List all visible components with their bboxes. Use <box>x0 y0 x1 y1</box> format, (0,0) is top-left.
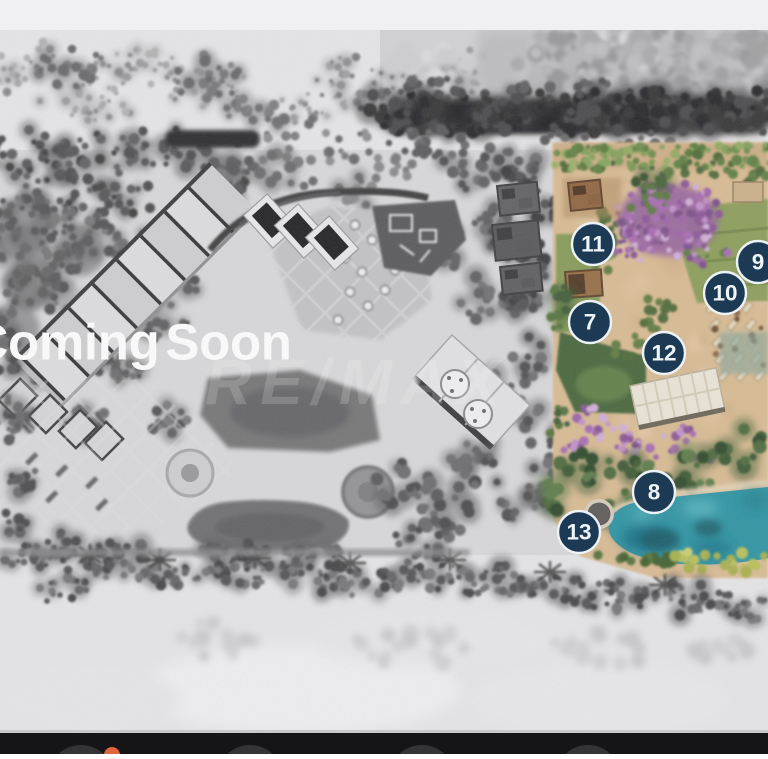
svg-text:9: 9 <box>752 250 765 275</box>
svg-text:13: 13 <box>566 520 591 545</box>
svg-text:10: 10 <box>712 281 737 306</box>
svg-text:7: 7 <box>584 310 597 335</box>
svg-text:11: 11 <box>581 232 605 257</box>
svg-text:8: 8 <box>648 480 661 505</box>
svg-text:12: 12 <box>651 341 676 366</box>
